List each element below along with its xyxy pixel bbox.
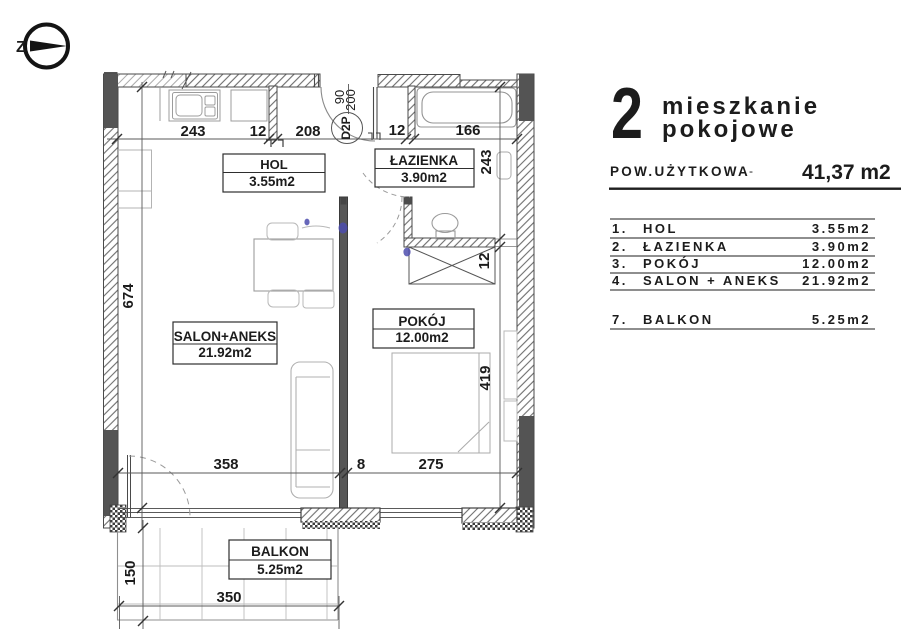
svg-text:674: 674 (120, 283, 137, 309)
svg-text:HOL: HOL (260, 157, 288, 172)
svg-text:ŁAZIENKA: ŁAZIENKA (390, 153, 458, 168)
svg-text:3.: 3. (612, 256, 628, 271)
svg-text:SALON+ANEKS: SALON+ANEKS (174, 329, 276, 344)
svg-text:BALKON: BALKON (251, 544, 309, 559)
svg-text:243: 243 (478, 149, 495, 174)
svg-text:150: 150 (122, 560, 139, 585)
svg-text:3.55m2: 3.55m2 (249, 174, 295, 189)
svg-text:POW.UŻYTKOWA: POW.UŻYTKOWA (610, 164, 750, 179)
svg-text:208: 208 (295, 123, 320, 140)
svg-text:8: 8 (357, 456, 365, 473)
svg-text:ŁAZIENKA: ŁAZIENKA (643, 239, 729, 254)
svg-text:2: 2 (611, 74, 643, 154)
svg-text:SALON + ANEKS: SALON + ANEKS (643, 273, 781, 288)
svg-text:41,37 m2: 41,37 m2 (802, 161, 891, 184)
svg-text:12: 12 (250, 123, 267, 140)
svg-text:1.: 1. (612, 221, 628, 236)
svg-text:275: 275 (418, 456, 443, 473)
svg-text:Z: Z (16, 39, 26, 56)
svg-text:243: 243 (180, 123, 205, 140)
svg-text:4.: 4. (612, 273, 628, 288)
svg-text:350: 350 (216, 589, 241, 606)
svg-text:5.25m2: 5.25m2 (812, 312, 871, 327)
svg-text:12.00m2: 12.00m2 (802, 256, 871, 271)
svg-text:D2P: D2P (339, 116, 353, 139)
svg-text:BALKON: BALKON (643, 312, 714, 327)
svg-text:3.90m2: 3.90m2 (812, 239, 871, 254)
svg-text:12: 12 (389, 122, 406, 139)
svg-text:12: 12 (476, 253, 493, 270)
svg-text:POKÓJ: POKÓJ (398, 314, 445, 329)
svg-text:166: 166 (455, 122, 480, 139)
svg-text:POKÓJ: POKÓJ (643, 256, 701, 271)
svg-text:419: 419 (477, 365, 494, 390)
svg-text:358: 358 (213, 456, 238, 473)
svg-text:HOL: HOL (643, 221, 678, 236)
svg-text:2.: 2. (612, 239, 628, 254)
svg-text:pokojowe: pokojowe (662, 116, 797, 143)
svg-text:7.: 7. (612, 312, 628, 327)
svg-text:12.00m2: 12.00m2 (395, 330, 448, 345)
svg-text:21.92m2: 21.92m2 (802, 273, 871, 288)
svg-text:5.25m2: 5.25m2 (257, 562, 303, 577)
svg-text:-: - (749, 164, 753, 178)
svg-text:3.55m2: 3.55m2 (812, 221, 871, 236)
svg-text:21.92m2: 21.92m2 (198, 345, 251, 360)
svg-text:90: 90 (332, 90, 347, 104)
svg-text:3.90m2: 3.90m2 (401, 170, 447, 185)
